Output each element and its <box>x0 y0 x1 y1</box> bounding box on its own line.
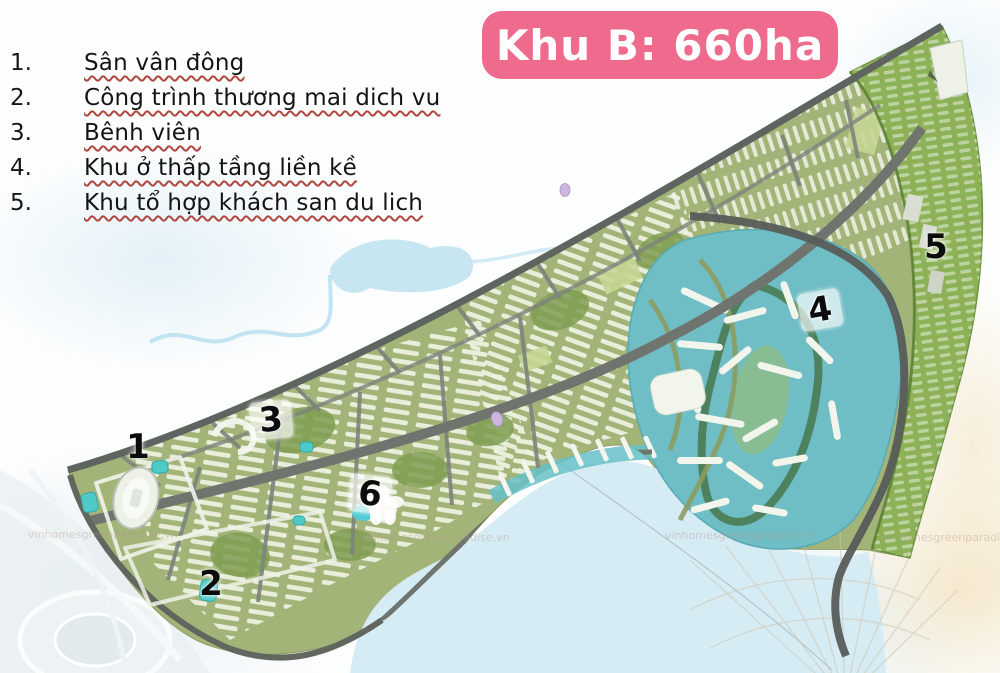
legend-label: Khu ở thấp tầng liền kề <box>84 155 357 181</box>
watermark: vinhomesgreenparadise.vn <box>880 531 1000 544</box>
watermark: vinhomesgreenparadise.vn <box>360 531 510 544</box>
legend-number: 2. <box>10 85 84 111</box>
zone-marker-2: 2 <box>199 567 223 601</box>
legend-label: Khu tổ hợp khách san du lich <box>84 190 423 216</box>
legend-item-5: 5. Khu tổ hợp khách san du lich <box>10 190 440 216</box>
watermark: vinhomesgreenparadise.vn <box>665 529 815 542</box>
legend-label: Công trình thương mai dich vu <box>84 85 440 111</box>
zone-marker-6: 6 <box>347 473 392 515</box>
legend-label: Sân vân đông <box>84 50 244 76</box>
legend-number: 4. <box>10 155 84 181</box>
legend-item-2: 2. Công trình thương mai dich vu <box>10 85 440 111</box>
legend-number: 3. <box>10 120 84 146</box>
watermark: vinhomesgreenparadise.vn <box>28 528 178 541</box>
zone-marker-5: 5 <box>924 230 948 264</box>
master-plan-screenshot: 1. Sân vân đông 2. Công trình thương mai… <box>0 0 1000 673</box>
area-banner: Khu B: 660ha <box>482 11 838 79</box>
legend-number: 1. <box>10 50 84 76</box>
area-banner-text: Khu B: 660ha <box>496 21 824 70</box>
legend-item-1: 1. Sân vân đông <box>10 50 440 76</box>
zone-marker-1: 1 <box>126 430 150 464</box>
legend-item-4: 4. Khu ở thấp tầng liền kề <box>10 155 440 181</box>
legend: 1. Sân vân đông 2. Công trình thương mai… <box>10 50 440 225</box>
legend-number: 5. <box>10 190 84 216</box>
zone-marker-3: 3 <box>249 399 294 440</box>
legend-label: Bênh viên <box>84 120 201 146</box>
legend-item-3: 3. Bênh viên <box>10 120 440 146</box>
zone-marker-4: 4 <box>796 288 844 333</box>
